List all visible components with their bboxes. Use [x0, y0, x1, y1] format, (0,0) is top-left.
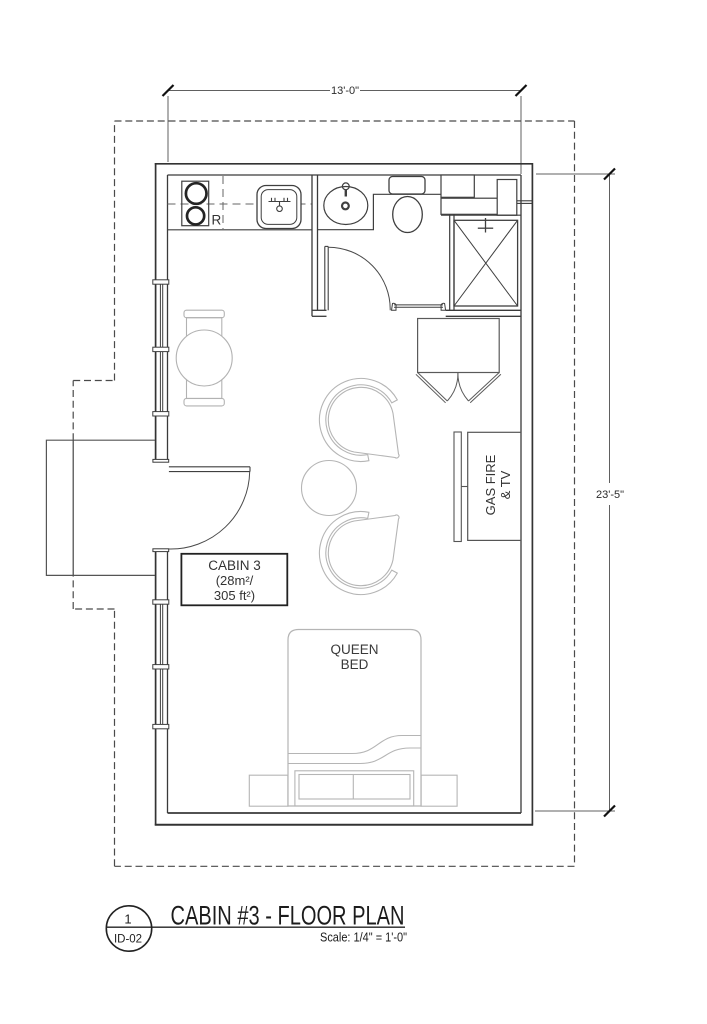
- svg-text:CABIN #3 - FLOOR PLAN: CABIN #3 - FLOOR PLAN: [171, 901, 405, 931]
- svg-text:1: 1: [124, 912, 131, 927]
- svg-text:R: R: [212, 213, 222, 228]
- svg-text:BED: BED: [341, 657, 369, 672]
- svg-text:(28m²/: (28m²/: [216, 573, 254, 588]
- svg-text:13'-0": 13'-0": [331, 85, 359, 97]
- svg-text:QUEEN: QUEEN: [330, 642, 378, 657]
- svg-text:Scale: 1/4" = 1'-0": Scale: 1/4" = 1'-0": [320, 931, 407, 945]
- svg-text:CABIN 3: CABIN 3: [208, 558, 261, 573]
- svg-text:23'-5": 23'-5": [596, 489, 624, 501]
- svg-text:305 ft²): 305 ft²): [214, 588, 255, 603]
- svg-text:ID-02: ID-02: [114, 934, 142, 946]
